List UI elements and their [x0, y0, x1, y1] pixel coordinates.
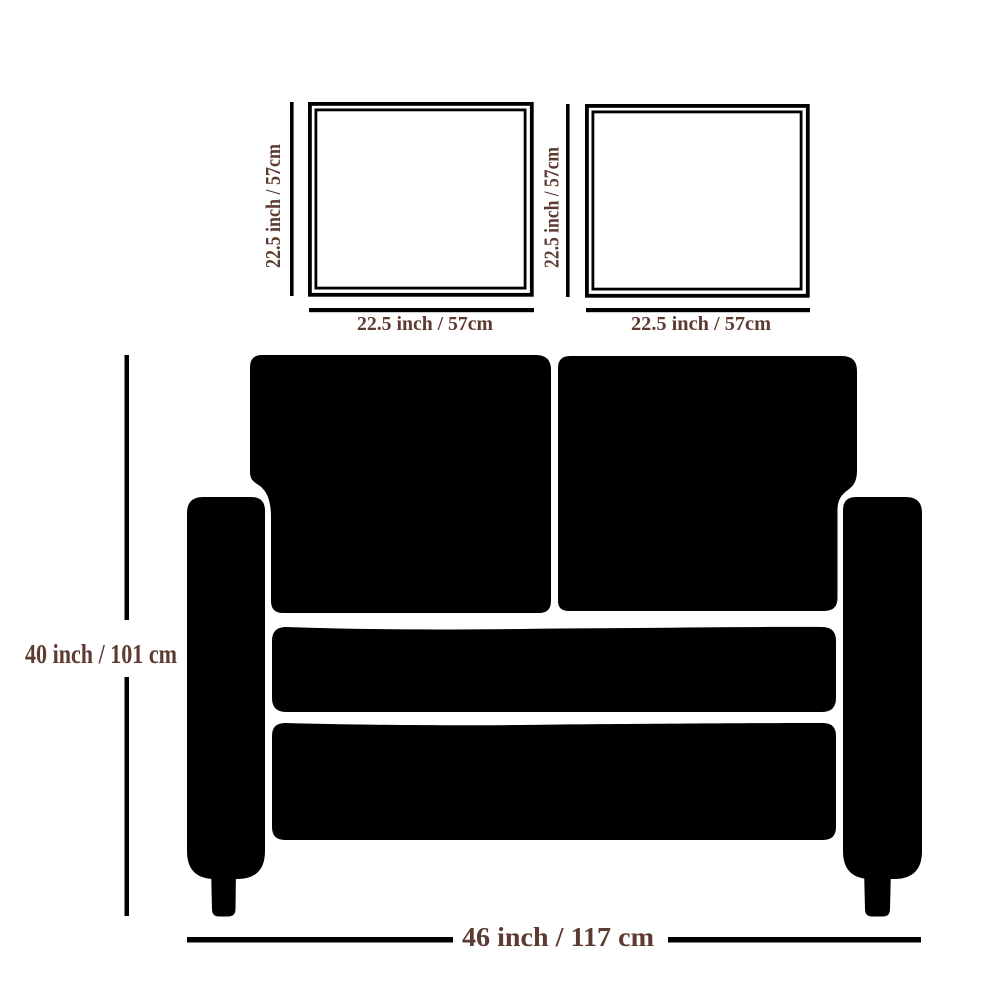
svg-text:22.5 inch / 57cm: 22.5 inch / 57cm	[261, 144, 285, 268]
svg-text:46 inch / 117 cm: 46 inch / 117 cm	[462, 922, 655, 952]
svg-text:22.5 inch / 57cm: 22.5 inch / 57cm	[540, 147, 564, 268]
svg-text:22.5 inch / 57cm: 22.5 inch / 57cm	[357, 313, 493, 335]
svg-text:22.5 inch / 57cm: 22.5 inch / 57cm	[631, 313, 771, 335]
svg-text:40 inch / 101 cm: 40 inch / 101 cm	[25, 639, 177, 669]
